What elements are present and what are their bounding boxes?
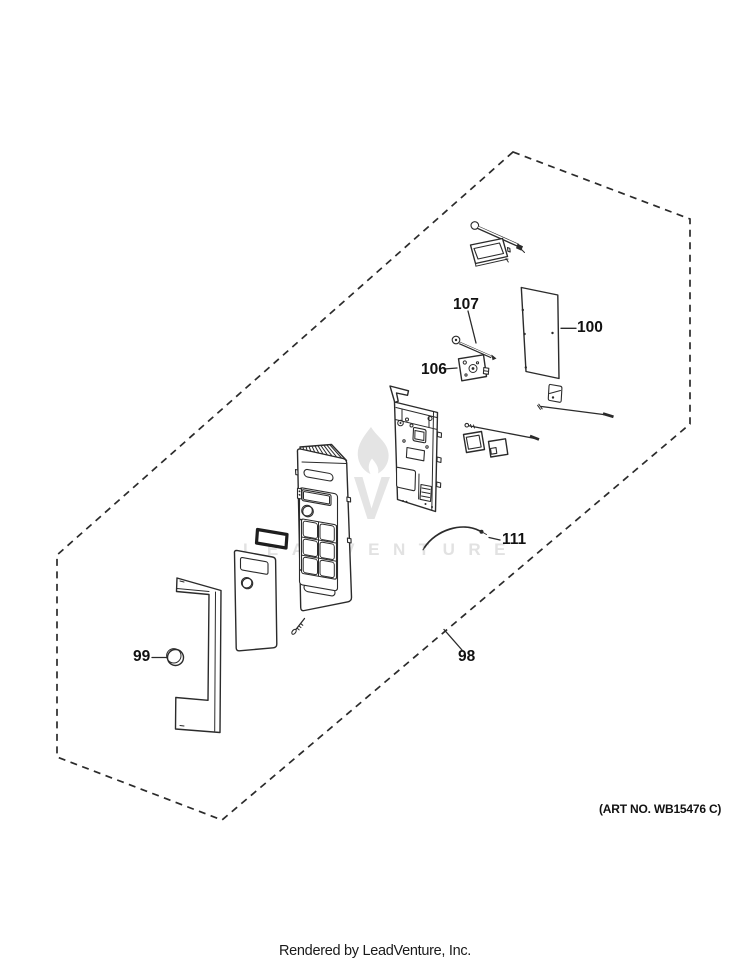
callout-98: 98 — [458, 648, 475, 666]
art-number: (ART NO. WB15476 C) — [599, 802, 721, 816]
callout-100: 100 — [577, 319, 603, 337]
small-screw — [291, 619, 305, 636]
clip-bracket-part — [548, 384, 562, 402]
rendered-by-text: Rendered by LeadVenture, Inc. — [0, 943, 750, 959]
long-screw-right — [538, 404, 614, 417]
wire-111 — [423, 527, 487, 550]
display-frame-part — [471, 239, 511, 267]
parts-diagram-page: LEADVENTURE — [0, 0, 750, 971]
callout-106: 106 — [421, 361, 447, 379]
leader-98 — [444, 630, 462, 651]
callout-111: 111 — [502, 531, 526, 549]
front-control-panel — [296, 445, 352, 611]
rear-panel — [390, 386, 442, 512]
board-106 — [459, 355, 489, 381]
membrane-overlay — [234, 551, 276, 651]
leadventure-flame-logo — [354, 427, 390, 519]
callout-99: 99 — [133, 648, 150, 666]
panel-100 — [521, 288, 559, 379]
gasket-part — [257, 530, 288, 549]
callout-107: 107 — [453, 296, 479, 314]
dashed-boundary — [57, 152, 690, 820]
chip-part — [489, 439, 508, 457]
leader-107 — [468, 311, 476, 343]
knob-99 — [167, 649, 184, 666]
exploded-view-diagram — [0, 0, 750, 971]
connector-frame-part — [464, 432, 485, 453]
leader-111 — [489, 538, 500, 541]
